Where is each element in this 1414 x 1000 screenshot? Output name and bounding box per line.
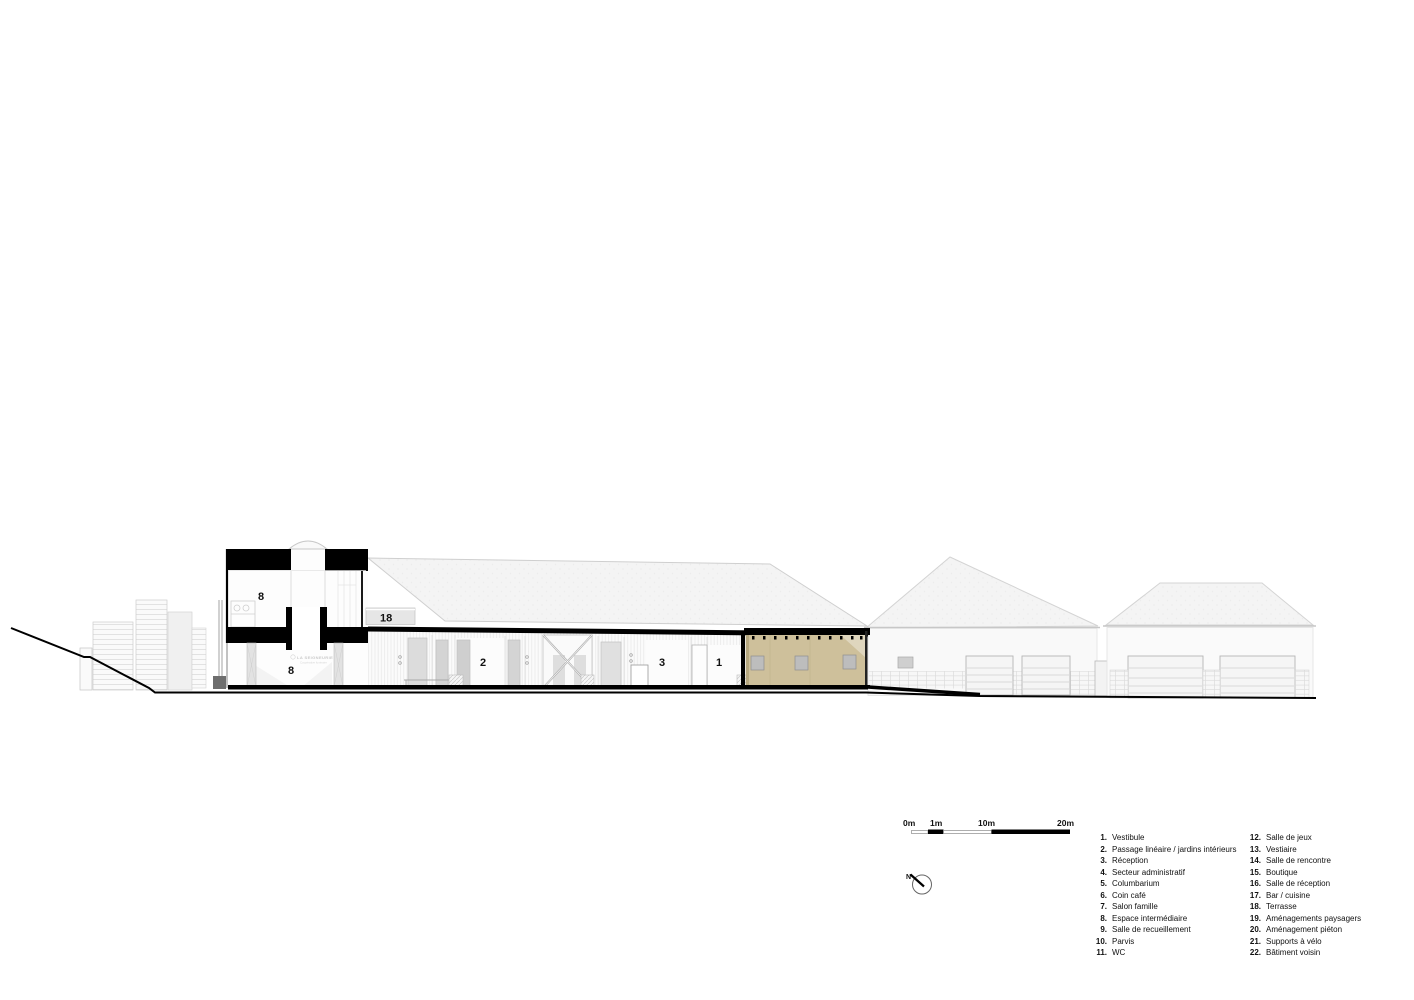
legend-item: 6.Coin café: [1093, 890, 1263, 902]
middle-side-door: [1095, 661, 1108, 696]
legend-num: 16.: [1245, 878, 1261, 890]
legend-num: 2.: [1093, 844, 1107, 856]
legend-label: Aménagement piéton: [1266, 924, 1342, 936]
legend-item: 17.Bar / cuisine: [1245, 890, 1414, 902]
right-garage-door: [1220, 656, 1295, 698]
interior-door: [508, 640, 520, 687]
legend-item: 8.Espace intermédiaire: [1093, 913, 1263, 925]
scale-bar: 0m 1m 10m 20m: [903, 818, 1074, 834]
block-pillar: [1203, 670, 1220, 698]
scale-label-10m: 10m: [978, 818, 995, 828]
legend-label: Parvis: [1112, 936, 1134, 948]
room-label-reception: 3: [659, 657, 665, 669]
logo-watermark-line1: LA SEIGNEURIE: [297, 655, 333, 660]
block-wall: [869, 671, 965, 689]
tower-roof-slab: [325, 549, 368, 571]
legend-label: Coin café: [1112, 890, 1146, 902]
legend-num: 14.: [1245, 855, 1261, 867]
legend-item: 5.Columbarium: [1093, 878, 1263, 890]
wall-panel: [646, 640, 688, 688]
legend-item: 20.Aménagement piéton: [1245, 924, 1414, 936]
legend-item: 22.Bâtiment voisin: [1245, 947, 1414, 959]
legend-num: 3.: [1093, 855, 1107, 867]
scale-label-1m: 1m: [930, 818, 943, 828]
block-wall: [1013, 671, 1023, 695]
legend-num: 7.: [1093, 901, 1107, 913]
neighbor-building-right: [1103, 583, 1316, 698]
middle-roof: [866, 557, 1098, 628]
legend-item: 2.Passage linéaire / jardins intérieurs: [1093, 844, 1263, 856]
legend-item: 4.Secteur administratif: [1093, 867, 1263, 879]
middle-garage-door: [1022, 656, 1070, 695]
column-base: [213, 676, 226, 689]
legend-column-2: 12.Salle de jeux 13.Vestiaire 14.Salle d…: [1245, 832, 1414, 959]
floor-line: [228, 685, 868, 690]
block-wall: [1070, 671, 1095, 695]
room-label-terrace-18: 18: [380, 613, 392, 625]
wood-volume: [744, 628, 870, 688]
scale-label-20m: 20m: [1057, 818, 1074, 828]
legend-label: Boutique: [1266, 867, 1298, 879]
door-frame: [692, 645, 707, 688]
exterior-stairs: [80, 600, 226, 690]
wood-window: [843, 655, 856, 669]
room-label-lower-8: 8: [288, 665, 294, 677]
legend-label: Espace intermédiaire: [1112, 913, 1187, 925]
legend-label: Aménagements paysagers: [1266, 913, 1361, 925]
legend-num: 19.: [1245, 913, 1261, 925]
wood-beam: [744, 628, 870, 635]
legend-label: Bâtiment voisin: [1266, 947, 1320, 959]
legend-label: Bar / cuisine: [1266, 890, 1310, 902]
middle-window: [898, 657, 913, 668]
legend-num: 20.: [1245, 924, 1261, 936]
neighbor-building-middle: [864, 557, 1108, 696]
logo-watermark-line2: Coopérative funéraire: [300, 661, 327, 665]
right-garage-door: [1128, 656, 1203, 698]
legend-num: 4.: [1093, 867, 1107, 879]
legend-num: 1.: [1093, 832, 1107, 844]
legend-item: 1.Vestibule: [1093, 832, 1263, 844]
legend-label: Réception: [1112, 855, 1148, 867]
legend-label: Salon famille: [1112, 901, 1158, 913]
legend-label: Vestibule: [1112, 832, 1144, 844]
legend-label: Terrasse: [1266, 901, 1297, 913]
legend-item: 19.Aménagements paysagers: [1245, 913, 1414, 925]
legend-num: 10.: [1093, 936, 1107, 948]
legend-item: 10.Parvis: [1093, 936, 1263, 948]
tower-roof-slab: [227, 549, 291, 570]
legend-item: 18.Terrasse: [1245, 901, 1414, 913]
floor-slab: [327, 627, 368, 643]
legend-label: Secteur administratif: [1112, 867, 1185, 879]
room-label-vestibule: 1: [716, 657, 722, 669]
legend-item: 14.Salle de rencontre: [1245, 855, 1414, 867]
legend-num: 6.: [1093, 890, 1107, 902]
wood-window: [795, 656, 808, 670]
floor-slab: [227, 627, 287, 643]
legend-item: 11.WC: [1093, 947, 1263, 959]
legend-label: Salle de recueillement: [1112, 924, 1191, 936]
middle-garage-door: [966, 656, 1013, 695]
legend-num: 22.: [1245, 947, 1261, 959]
legend-item: 3.Réception: [1093, 855, 1263, 867]
legend-item: 15.Boutique: [1245, 867, 1414, 879]
wood-window: [751, 656, 764, 670]
legend-item: 21.Supports à vélo: [1245, 936, 1414, 948]
legend-label: Passage linéaire / jardins intérieurs: [1112, 844, 1237, 856]
legend-item: 16.Salle de réception: [1245, 878, 1414, 890]
legend-num: 5.: [1093, 878, 1107, 890]
room-label-upper-8: 8: [258, 591, 264, 603]
dome: [289, 541, 327, 549]
right-roof: [1106, 583, 1313, 625]
reception-counter: [631, 665, 648, 688]
legend-num: 13.: [1245, 844, 1261, 856]
legend-num: 12.: [1245, 832, 1261, 844]
legend-num: 9.: [1093, 924, 1107, 936]
room-label-passage: 2: [480, 657, 486, 669]
long-roof: [368, 558, 867, 626]
legend-label: Columbarium: [1112, 878, 1160, 890]
legend-label: WC: [1112, 947, 1125, 959]
legend-num: 18.: [1245, 901, 1261, 913]
block-pillar: [1295, 670, 1309, 698]
legend-num: 21.: [1245, 936, 1261, 948]
legend-item: 9.Salle de recueillement: [1093, 924, 1263, 936]
legend-num: 17.: [1245, 890, 1261, 902]
architectural-drawing-sheet: 2 3 1: [0, 0, 1414, 1000]
legend-item: 12.Salle de jeux: [1245, 832, 1414, 844]
legend-label: Supports à vélo: [1266, 936, 1322, 948]
wall-cut: [741, 631, 745, 688]
scale-label-0m: 0m: [903, 818, 916, 828]
legend-column-1: 1.Vestibule 2.Passage linéaire / jardins…: [1093, 832, 1263, 959]
legend-item: 7.Salon famille: [1093, 901, 1263, 913]
elevator-shaft: [292, 607, 320, 650]
main-building-long-wing: 2 3 1: [368, 558, 870, 689]
legend-num: 11.: [1093, 947, 1107, 959]
legend-label: Salle de rencontre: [1266, 855, 1331, 867]
legend-num: 8.: [1093, 913, 1107, 925]
legend-label: Salle de réception: [1266, 878, 1330, 890]
block-pillar: [1110, 670, 1128, 698]
north-arrow: N: [906, 874, 932, 894]
wall-panel: [708, 645, 741, 688]
legend-label: Vestiaire: [1266, 844, 1297, 856]
legend-num: 15.: [1245, 867, 1261, 879]
legend-item: 13.Vestiaire: [1245, 844, 1414, 856]
interior-door: [601, 642, 621, 688]
legend-label: Salle de jeux: [1266, 832, 1312, 844]
